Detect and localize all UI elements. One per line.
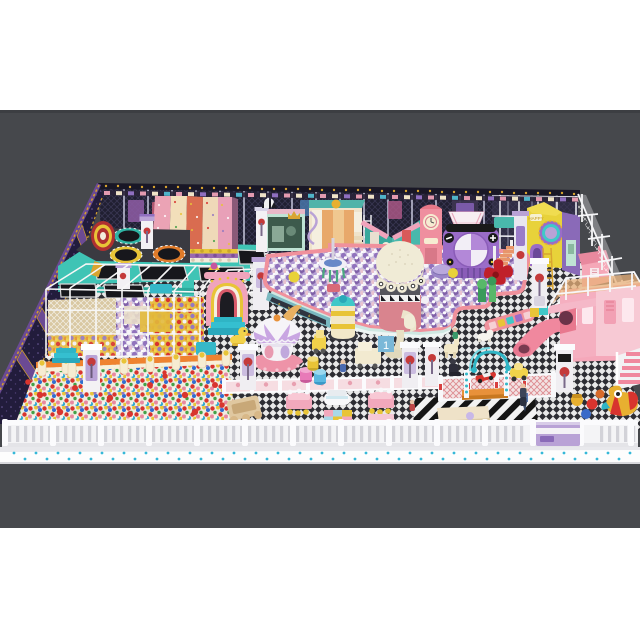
svg-text:1: 1 [383, 340, 389, 352]
svg-text:HAPPY: HAPPY [528, 216, 543, 221]
svg-text:d: d [308, 313, 310, 318]
